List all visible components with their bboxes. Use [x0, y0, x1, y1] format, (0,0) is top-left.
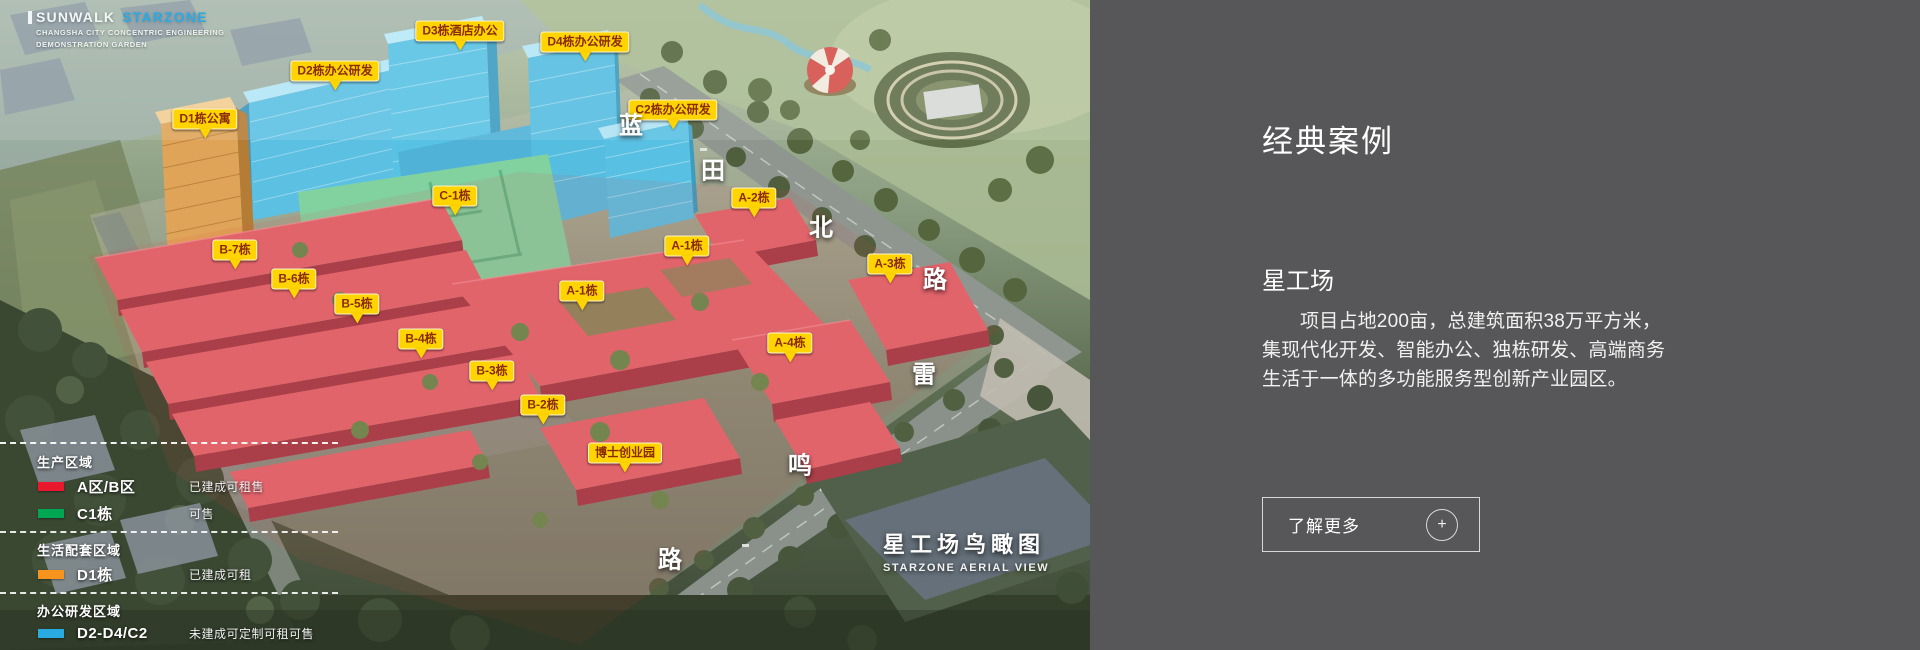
road-name-character: 路: [658, 540, 682, 575]
legend-name: D2-D4/C2: [77, 625, 189, 642]
aerial-map: SUNWALK STARZONE CHANGSHA CITY CONCENTRI…: [0, 0, 1090, 650]
legend-status: 可售: [189, 505, 214, 522]
road-name-character: 路: [923, 260, 947, 295]
legend-status: 已建成可租售: [189, 478, 264, 495]
map-title-en: STARZONE AERIAL VIEW: [883, 562, 1049, 574]
map-title: 星工场鸟瞰图: [883, 527, 1049, 559]
legend-swatch: [38, 509, 64, 518]
road-name-character: 鸣: [788, 446, 812, 481]
legend-row: D2-D4/C2未建成可定制可租可售: [0, 622, 338, 645]
map-title-block: 星工场鸟瞰图 STARZONE AERIAL VIEW: [883, 527, 1049, 574]
legend-group-header: 生产区域: [0, 449, 338, 473]
map-overlay: SUNWALK STARZONE CHANGSHA CITY CONCENTRI…: [0, 0, 1090, 650]
section-heading: 经典案例: [1262, 116, 1394, 161]
legend-swatch: [38, 629, 64, 638]
project-name: 星工场: [1262, 261, 1334, 296]
learn-more-label: 了解更多: [1288, 512, 1360, 537]
legend-row: D1栋已建成可租: [0, 561, 338, 588]
legend-row: A区/B区已建成可租售: [0, 473, 338, 500]
road-name-character: 雷: [912, 355, 936, 390]
legend-separator: [0, 531, 338, 533]
legend-group-header: 生活配套区域: [0, 537, 338, 561]
map-legend: 生产区域A区/B区已建成可租售C1栋可售生活配套区域D1栋已建成可租办公研发区域…: [0, 442, 338, 650]
legend-group-header: 办公研发区域: [0, 598, 338, 622]
learn-more-button[interactable]: 了解更多 +: [1262, 497, 1480, 552]
legend-name: A区/B区: [77, 476, 189, 497]
road-name-character: 田: [701, 151, 725, 186]
legend-separator: [0, 592, 338, 594]
legend-name: D1栋: [77, 564, 189, 585]
legend-name: C1栋: [77, 503, 189, 524]
info-panel: 经典案例 星工场 项目占地200亩，总建筑面积38万平方米，集现代化开发、智能办…: [1090, 0, 1920, 650]
project-description: 项目占地200亩，总建筑面积38万平方米，集现代化开发、智能办公、独栋研发、高端…: [1262, 307, 1674, 394]
page: SUNWALK STARZONE CHANGSHA CITY CONCENTRI…: [0, 0, 1920, 650]
legend-status: 已建成可租: [189, 566, 252, 583]
legend-swatch: [38, 482, 64, 491]
legend-swatch: [38, 570, 64, 579]
road-name-character: 北: [809, 208, 833, 243]
road-name-character: 蓝: [619, 106, 643, 141]
plus-circle-icon[interactable]: +: [1426, 509, 1458, 541]
legend-row: C1栋可售: [0, 500, 338, 527]
legend-status: 未建成可定制可租可售: [189, 625, 314, 642]
